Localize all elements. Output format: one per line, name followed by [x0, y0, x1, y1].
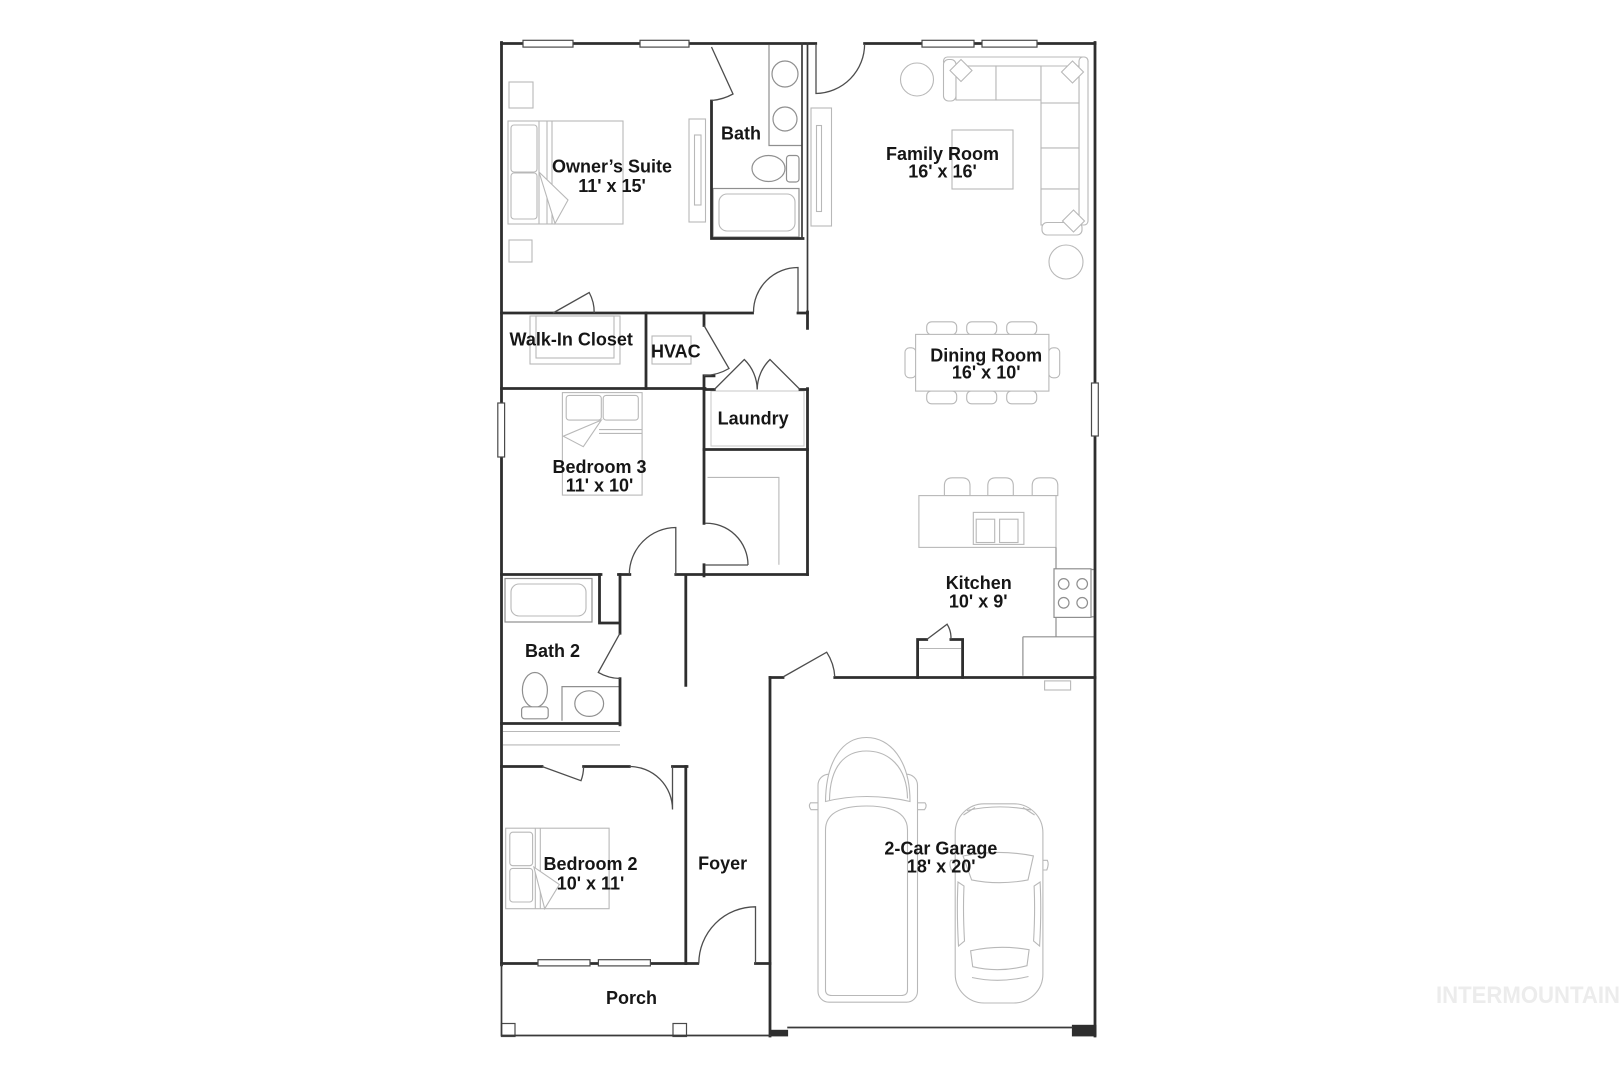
svg-text:Bedroom 3: Bedroom 3 — [552, 457, 646, 477]
svg-text:11' x 10': 11' x 10' — [566, 476, 634, 496]
svg-text:16' x 16': 16' x 16' — [908, 161, 977, 181]
svg-text:Bath 2: Bath 2 — [525, 641, 580, 661]
svg-text:Owner’s Suite: Owner’s Suite — [552, 157, 672, 177]
svg-text:10' x 9': 10' x 9' — [949, 592, 1008, 612]
svg-text:2-Car Garage: 2-Car Garage — [884, 838, 997, 858]
svg-text:Foyer: Foyer — [698, 853, 747, 873]
svg-text:HVAC: HVAC — [651, 342, 701, 362]
svg-text:Kitchen: Kitchen — [946, 573, 1012, 593]
svg-text:Bedroom 2: Bedroom 2 — [543, 854, 637, 874]
svg-text:18' x 20': 18' x 20' — [907, 857, 976, 877]
svg-text:Bath: Bath — [721, 124, 761, 144]
svg-text:16' x 10': 16' x 10' — [952, 362, 1021, 382]
svg-text:INTERMOUNTAIN: INTERMOUNTAIN — [1436, 982, 1620, 1009]
svg-text:Porch: Porch — [606, 988, 657, 1008]
svg-text:10' x 11': 10' x 11' — [557, 873, 625, 893]
svg-text:11' x 15': 11' x 15' — [578, 176, 646, 196]
svg-text:Laundry: Laundry — [718, 408, 789, 428]
svg-text:Walk-In Closet: Walk-In Closet — [510, 330, 633, 350]
